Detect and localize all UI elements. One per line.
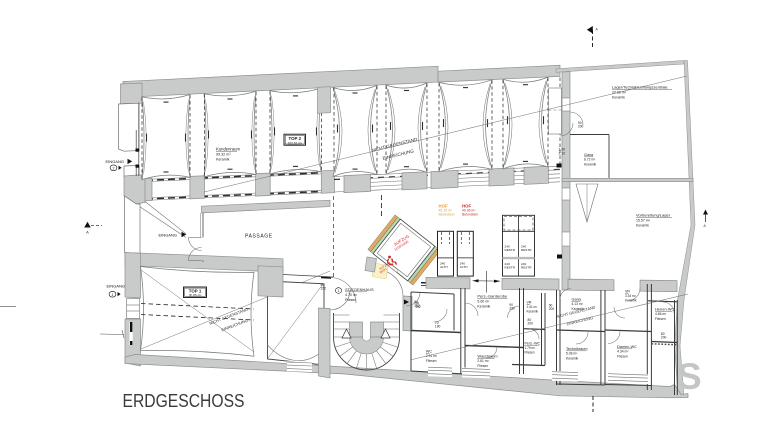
svg-text:Damen-WC: Damen-WC: [617, 345, 637, 349]
svg-text:Waschraum: Waschraum: [477, 355, 497, 359]
svg-text:A: A: [86, 230, 89, 235]
svg-text:EINGANG: EINGANG: [106, 159, 124, 164]
svg-text:200: 200: [528, 322, 534, 326]
svg-text:99.32 m²: 99.32 m²: [216, 153, 231, 157]
svg-text:Fliesen: Fliesen: [655, 317, 666, 321]
svg-text:2.10: 2.10: [559, 152, 566, 156]
svg-text:Fliesen: Fliesen: [426, 359, 437, 363]
svg-text:STIEGENHAUS: STIEGENHAUS: [345, 287, 374, 292]
svg-text:Keramik: Keramik: [527, 310, 539, 314]
svg-text:S: S: [677, 356, 702, 397]
svg-text:4.34 m²: 4.34 m²: [617, 350, 629, 354]
svg-text:Keramik: Keramik: [216, 158, 230, 162]
svg-text:Fliesen: Fliesen: [617, 354, 628, 358]
svg-text:Pers.-WC: Pers.-WC: [525, 342, 541, 346]
svg-text:3.34 m²: 3.34 m²: [625, 294, 636, 298]
svg-text:RESTR: RESTR: [505, 248, 516, 252]
svg-text:EINGANG: EINGANG: [107, 284, 125, 289]
svg-text:Fliesen: Fliesen: [345, 298, 356, 302]
svg-text:Fliesen: Fliesen: [477, 364, 488, 368]
svg-text:2: 2: [113, 167, 115, 171]
svg-text:8.72 m²: 8.72 m²: [584, 158, 596, 162]
svg-text:192: 192: [415, 305, 421, 309]
svg-text:Fliesen: Fliesen: [525, 351, 535, 355]
svg-text:1: 1: [338, 289, 340, 293]
svg-text:102.61 m²: 102.61 m²: [288, 141, 302, 145]
svg-text:30.86 m²: 30.86 m²: [189, 294, 202, 298]
svg-text:230: 230: [509, 307, 515, 311]
svg-text:VR: VR: [625, 290, 630, 294]
svg-text:4.13 m²: 4.13 m²: [572, 302, 584, 306]
svg-text:5.60 m²: 5.60 m²: [477, 299, 490, 303]
svg-text:1: 1: [112, 293, 114, 297]
svg-text:Gang: Gang: [584, 153, 593, 157]
svg-text:RESTR: RESTR: [521, 266, 532, 270]
svg-text:ERDGESCHOSS: ERDGESCHOSS: [123, 390, 245, 411]
svg-text:Herren-WC: Herren-WC: [655, 308, 674, 312]
svg-text:VR: VR: [527, 301, 532, 305]
svg-text:4.70 m²: 4.70 m²: [345, 293, 358, 297]
svg-text:Kundenraum: Kundenraum: [216, 147, 240, 152]
svg-text:Keramik: Keramik: [636, 223, 649, 227]
svg-text:152: 152: [321, 287, 327, 291]
svg-text:200: 200: [578, 125, 584, 129]
svg-text:Technikraum: Technikraum: [566, 347, 588, 351]
svg-text:4.66 m²: 4.66 m²: [655, 312, 667, 316]
svg-text:Gang: Gang: [572, 298, 581, 302]
svg-text:1.41 m²: 1.41 m²: [527, 305, 538, 309]
svg-text:15.57 m²: 15.57 m²: [636, 218, 651, 222]
svg-text:190: 190: [435, 325, 441, 329]
svg-text:1.79 m²: 1.79 m²: [525, 346, 536, 350]
svg-text:Keramik: Keramik: [625, 299, 637, 303]
svg-text:Betonstein: Betonstein: [462, 212, 478, 216]
svg-text:RESTR: RESTR: [505, 266, 516, 270]
svg-text:ALTH: ALTH: [440, 265, 448, 269]
svg-text:EINGANG: EINGANG: [159, 232, 177, 237]
svg-text:200: 200: [661, 336, 667, 340]
svg-text:200: 200: [549, 307, 555, 311]
svg-text:ALTH: ALTH: [460, 265, 468, 269]
svg-text:Keramik: Keramik: [477, 304, 490, 308]
svg-text:PASSAGE: PASSAGE: [245, 234, 273, 240]
svg-text:5.08 m²: 5.08 m²: [566, 352, 578, 356]
svg-text:Keramik: Keramik: [566, 356, 579, 360]
svg-text:Keramik: Keramik: [584, 162, 597, 166]
svg-text:2.61 m²: 2.61 m²: [477, 359, 489, 363]
svg-text:WC: WC: [426, 350, 433, 354]
svg-text:RESTR: RESTR: [521, 248, 532, 252]
svg-text:Pers.-Garderobe: Pers.-Garderobe: [477, 294, 508, 299]
svg-text:Betonstein: Betonstein: [439, 212, 455, 216]
svg-text:Keramik: Keramik: [612, 95, 625, 99]
svg-text:Vorbereitung/Lager: Vorbereitung/Lager: [636, 213, 671, 218]
